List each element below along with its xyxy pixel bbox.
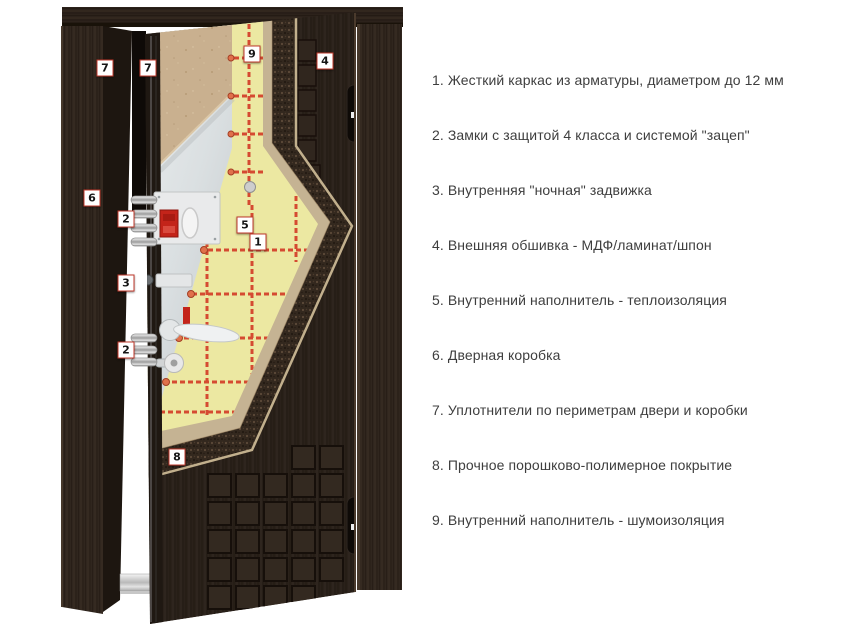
legend-item-6: 6. Дверная коробка [432,345,844,365]
legend-list: 1. Жесткий каркас из арматуры, диаметром… [432,70,844,565]
legend-item-4: 4. Внешняя обшивка - МДФ/ламинат/шпон [432,235,844,255]
frame-seal-strip [132,31,146,213]
legend-item-2: 2. Замки с защитой 4 класса и системой "… [432,125,844,145]
legend-item-5: 5. Внутренний наполнитель - теплоизоляци… [432,290,844,310]
frame-left-post [62,26,103,614]
door-leaf [143,12,362,624]
legend-item-9: 9. Внутренний наполнитель - шумоизоляция [432,510,844,530]
frame-left-post-side [103,26,132,612]
upper-lock [154,192,220,244]
legend-item-3: 3. Внутренняя "ночная" задвижка [432,180,844,200]
anchor-pin [245,182,256,193]
frame-right-post [357,24,402,590]
legend-item-7: 7. Уплотнители по периметрам двери и кор… [432,400,844,420]
legend-item-8: 8. Прочное порошково-полимерное покрытие [432,455,844,475]
door-diagram: 77946251328 1. Жесткий каркас из арматур… [0,0,850,636]
legend-item-1: 1. Жесткий каркас из арматуры, диаметром… [432,70,844,90]
